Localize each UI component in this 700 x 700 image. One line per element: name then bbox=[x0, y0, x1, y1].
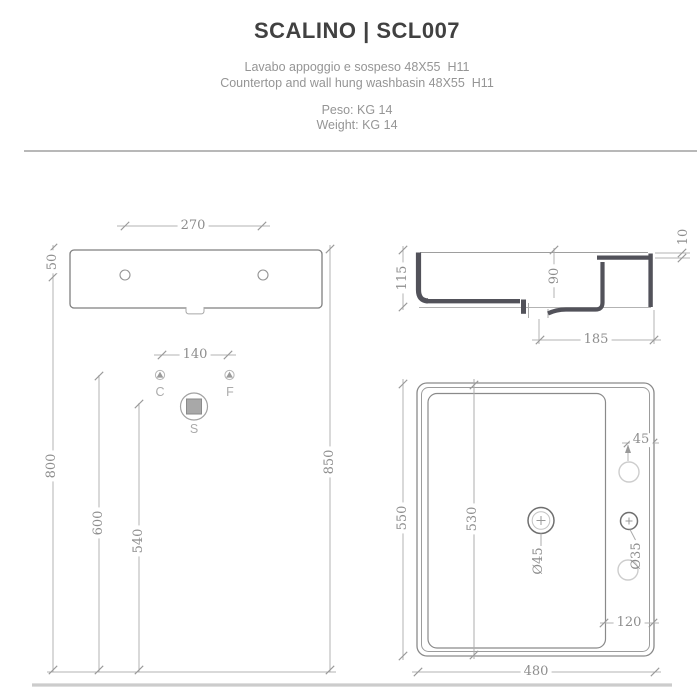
top-dim-120: 120 bbox=[614, 616, 645, 630]
front-dim-800: 800 bbox=[45, 451, 59, 482]
top-dim-550: 550 bbox=[396, 503, 410, 534]
front-outline bbox=[70, 250, 322, 308]
front-view bbox=[70, 250, 322, 314]
front-drain-tab bbox=[186, 308, 204, 314]
top-dim-480: 480 bbox=[521, 665, 552, 679]
section-left-wall bbox=[419, 253, 429, 301]
symbol-letter-drain: S bbox=[190, 423, 198, 436]
symbol-letter-hot: C bbox=[155, 386, 164, 399]
side-view bbox=[419, 253, 652, 319]
front-dim-50: 50 bbox=[46, 251, 60, 274]
side-dimension-lines bbox=[399, 246, 690, 344]
front-dim-270: 270 bbox=[178, 219, 209, 233]
drawing-canvas bbox=[0, 0, 700, 700]
top-view bbox=[399, 379, 661, 676]
side-dim-185: 185 bbox=[581, 333, 612, 347]
front-dim-600: 600 bbox=[92, 508, 106, 539]
installation-symbols bbox=[155, 370, 234, 420]
front-dim-850: 850 bbox=[323, 447, 337, 478]
top-dim-tap-diameter: Ø35 bbox=[630, 539, 644, 572]
symbol-letter-cold: F bbox=[226, 386, 234, 399]
top-dim-530: 530 bbox=[466, 504, 480, 535]
top-dim-drain-diameter: Ø45 bbox=[532, 544, 546, 577]
side-dim-90: 90 bbox=[548, 265, 562, 288]
hot-water-triangle-icon bbox=[157, 372, 164, 378]
side-dim-10: 10 bbox=[677, 226, 691, 249]
front-dim-140: 140 bbox=[180, 348, 211, 362]
technical-sheet: SCALINO | SCL007 Lavabo appoggio e sospe… bbox=[0, 0, 700, 700]
top-dim-45: 45 bbox=[630, 433, 653, 447]
side-dim-115: 115 bbox=[396, 263, 410, 294]
drain-square-icon bbox=[187, 399, 202, 414]
cold-water-triangle-icon bbox=[226, 372, 233, 378]
front-dim-540: 540 bbox=[132, 526, 146, 557]
